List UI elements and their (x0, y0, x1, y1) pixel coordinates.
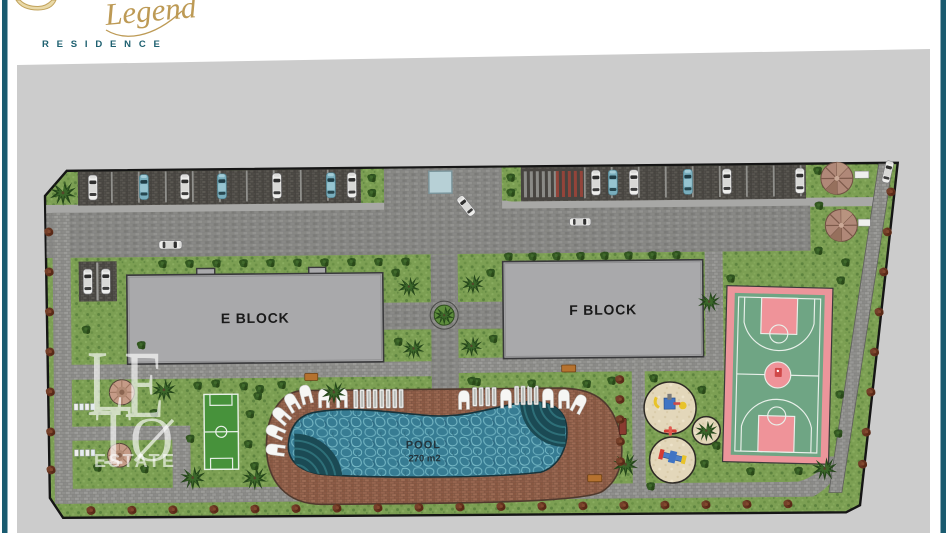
svg-text:F BLOCK: F BLOCK (569, 301, 637, 318)
svg-text:RESIDENCE: RESIDENCE (42, 39, 168, 50)
svg-text:E BLOCK: E BLOCK (221, 310, 290, 327)
svg-text:POOL: POOL (406, 439, 441, 451)
svg-text:ESTATE: ESTATE (94, 451, 176, 471)
svg-text:270 m2: 270 m2 (408, 453, 440, 464)
